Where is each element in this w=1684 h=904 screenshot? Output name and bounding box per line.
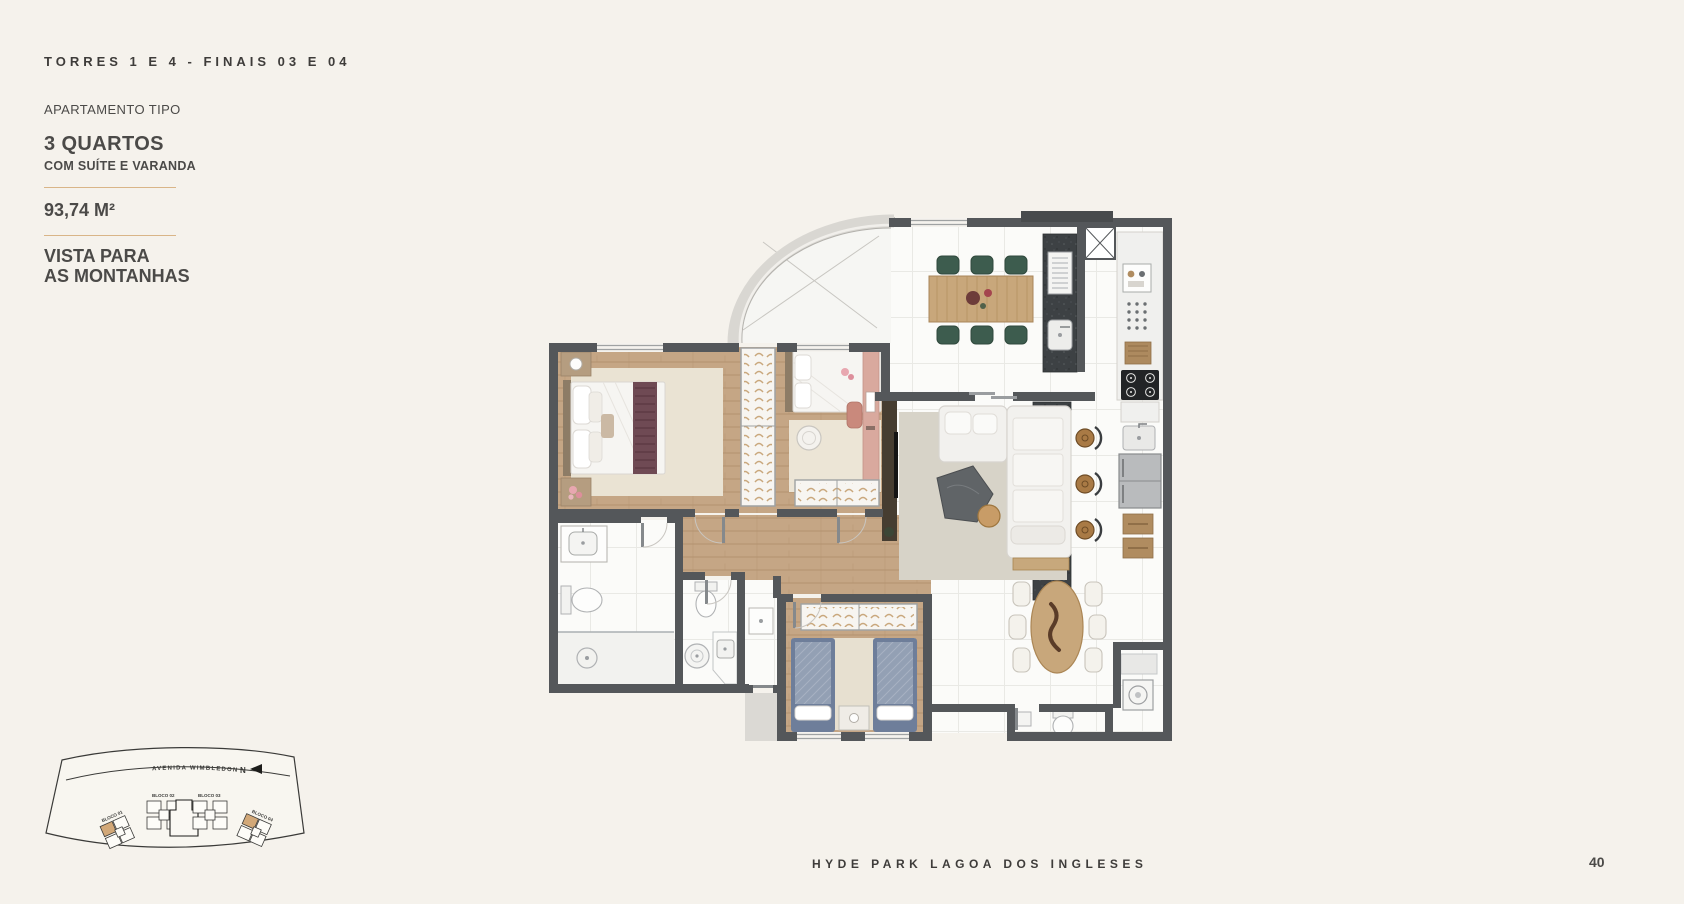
gold-divider	[44, 235, 176, 236]
twin-wardrobe	[801, 604, 917, 630]
bedroom2-window	[797, 343, 849, 352]
site-map: AVENIDA WIMBLEDON N BLOCO 01 BLOCO 02	[42, 740, 312, 850]
fridge	[1119, 454, 1161, 508]
suite-bath-shower	[558, 632, 674, 685]
apartment-area: 93,74 M²	[44, 200, 196, 221]
stove	[1121, 370, 1159, 400]
vestibule-cabinet	[749, 608, 773, 634]
floor-plan	[545, 180, 1185, 765]
block-3-label: BLOCO 03	[198, 793, 221, 798]
coffee-station	[1123, 264, 1151, 292]
plant	[884, 527, 894, 537]
bedroom-2	[785, 350, 881, 506]
suite-nightstand-bottom	[561, 478, 591, 506]
view-line-2: AS MONTANHAS	[44, 266, 196, 286]
gold-divider	[44, 187, 176, 188]
side-table	[978, 505, 1000, 527]
north-label: N	[240, 766, 246, 775]
apartment-title: 3 QUARTOS	[44, 133, 196, 156]
twin-nightstand	[839, 706, 869, 730]
shaft	[1085, 227, 1115, 259]
washing-machine	[1123, 680, 1153, 710]
suite-closet	[741, 348, 775, 506]
suite-bedroom	[561, 352, 723, 506]
living-room	[899, 406, 1071, 580]
block-2-label: BLOCO 02	[152, 793, 175, 798]
apartment-view: VISTA PARA AS MONTANHAS	[44, 246, 196, 287]
lavabo-door	[1015, 708, 1018, 730]
suite-nightstand-top	[561, 352, 591, 376]
dining-table	[1031, 581, 1083, 673]
page-number: 40	[1589, 854, 1605, 870]
sofa-wood-bench	[1013, 558, 1069, 570]
entry-recess	[745, 693, 777, 741]
project-name: HYDE PARK LAGOA DOS INGLESES	[812, 857, 1147, 871]
apartment-subtitle: COM SUÍTE E VARANDA	[44, 159, 196, 173]
apartment-type-label: APARTAMENTO TIPO	[44, 102, 196, 117]
gourmet-dining-table	[929, 276, 1033, 322]
kitchen-sink	[1123, 424, 1155, 450]
gourmet-window	[911, 218, 967, 227]
suite-window	[597, 343, 663, 352]
cutting-board	[1125, 342, 1151, 364]
social-bath-shower	[685, 644, 709, 668]
suite-double-bed	[563, 380, 665, 476]
dining-area	[1009, 581, 1106, 673]
tv-panel	[882, 401, 898, 541]
service-area	[1121, 654, 1157, 710]
twin-bed-right	[873, 638, 917, 732]
barbecue-counter	[1043, 234, 1077, 372]
page-kicker: TORRES 1 E 4 - FINAIS 03 E 04	[44, 54, 351, 69]
suite-bath-vanity	[561, 526, 607, 562]
bedroom2-pouf	[797, 426, 821, 450]
apartment-info-panel: APARTAMENTO TIPO 3 QUARTOS COM SUÍTE E V…	[44, 102, 196, 287]
view-line-1: VISTA PARA	[44, 246, 196, 266]
curved-balcony-floor	[741, 228, 891, 343]
bedroom2-wardrobe	[795, 480, 879, 506]
entry-door	[753, 685, 773, 688]
twin-bed-left	[791, 638, 835, 732]
brochure-page: TORRES 1 E 4 - FINAIS 03 E 04 APARTAMENT…	[0, 0, 1684, 904]
suite-bath-toilet	[561, 586, 602, 614]
